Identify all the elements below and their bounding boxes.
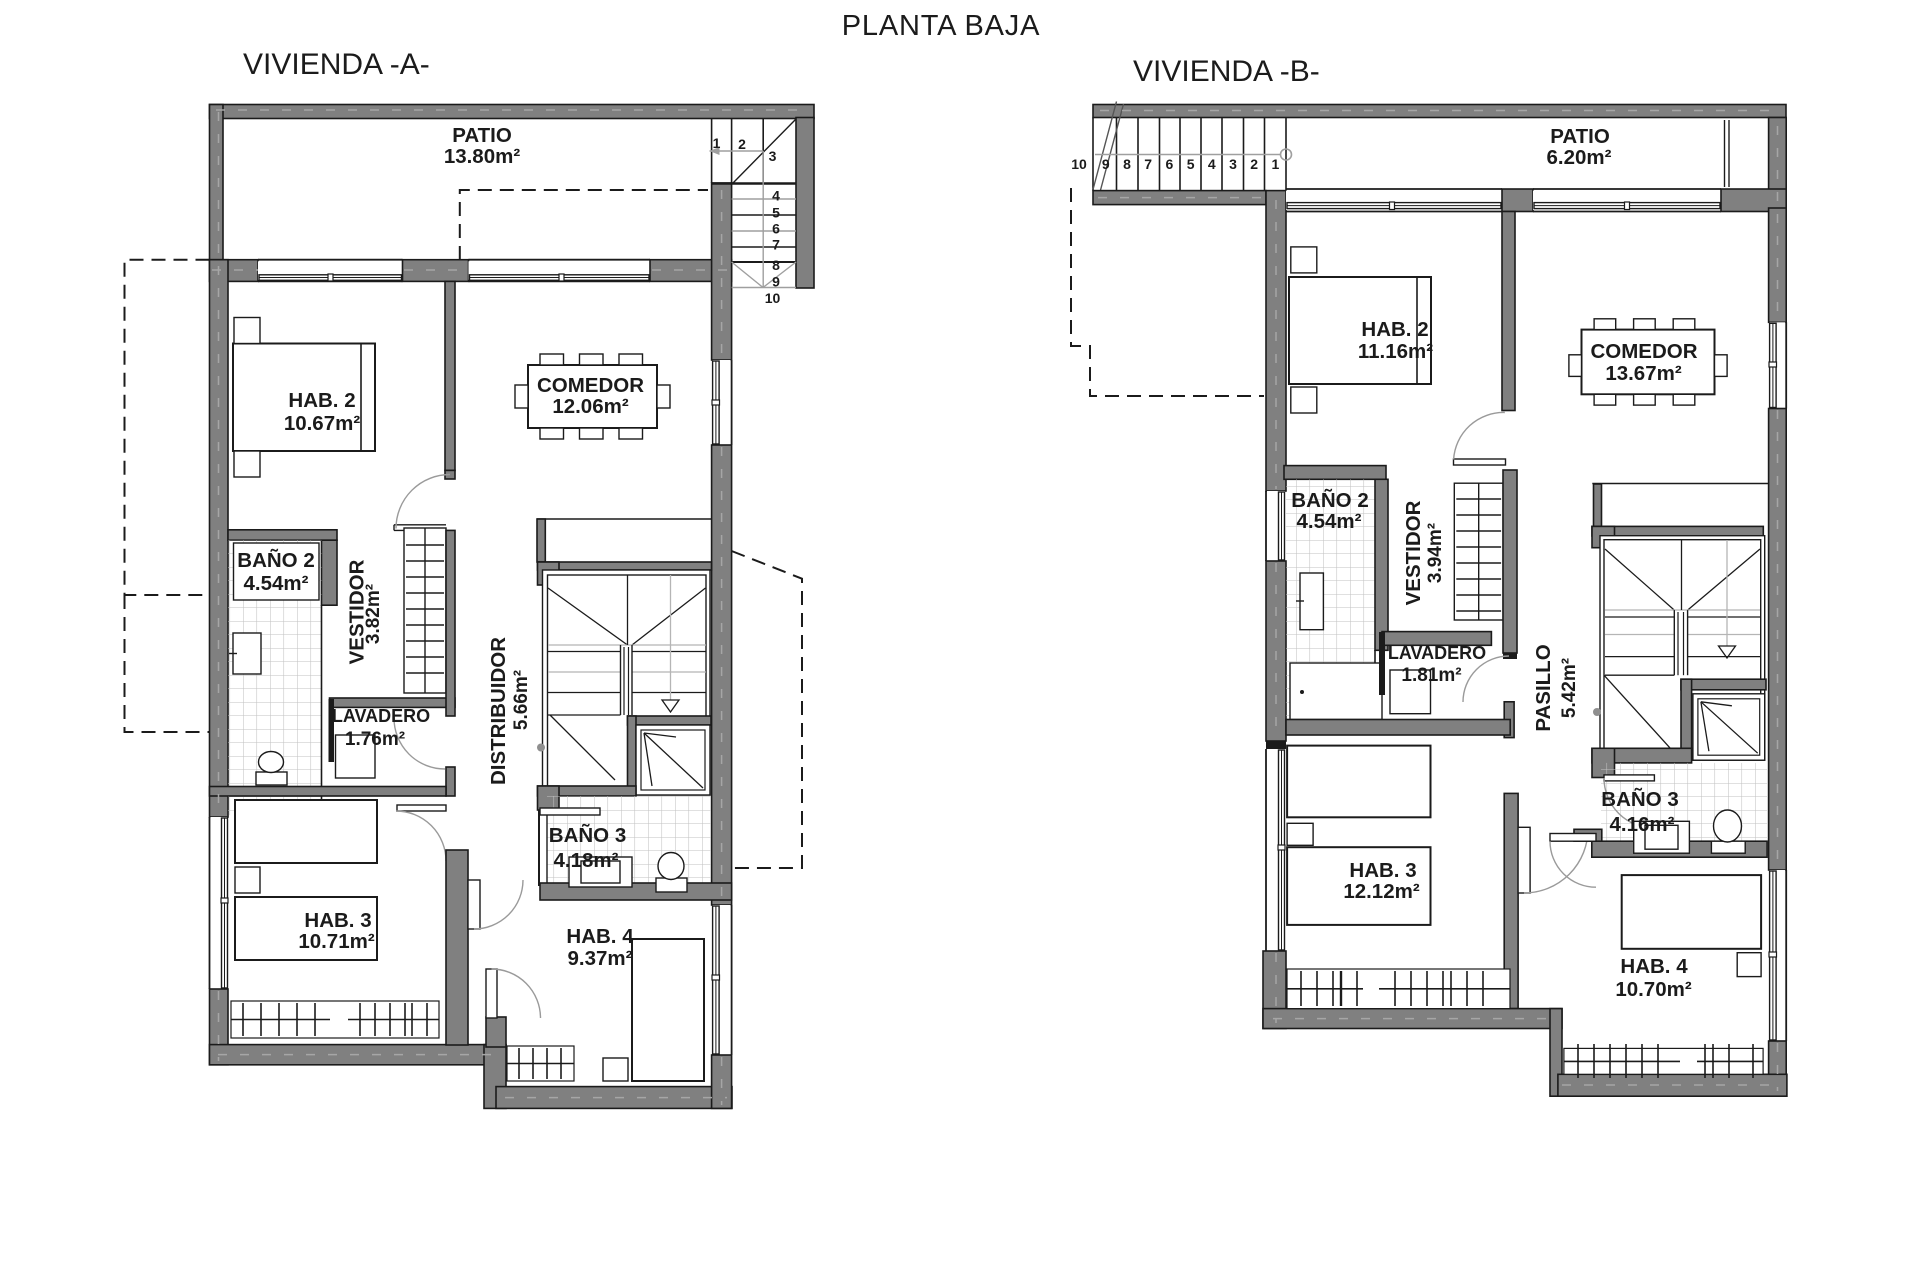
svg-text:VIVIENDA -A-: VIVIENDA -A- xyxy=(243,48,430,81)
svg-text:1.76m²: 1.76m² xyxy=(345,729,405,750)
svg-text:HAB. 3: HAB. 3 xyxy=(1349,859,1416,882)
svg-text:BAÑO 3: BAÑO 3 xyxy=(549,824,626,847)
svg-text:2: 2 xyxy=(1250,156,1258,172)
svg-text:PASILLO: PASILLO xyxy=(1532,644,1555,731)
svg-text:10: 10 xyxy=(765,290,781,306)
svg-text:4.16m²: 4.16m² xyxy=(1610,813,1675,836)
svg-text:8: 8 xyxy=(772,257,780,273)
svg-text:12.06m²: 12.06m² xyxy=(552,395,629,418)
svg-text:BAÑO 3: BAÑO 3 xyxy=(1601,788,1678,811)
svg-text:3.82m²: 3.82m² xyxy=(363,584,384,644)
svg-text:4.54m²: 4.54m² xyxy=(244,572,309,595)
svg-text:PATIO: PATIO xyxy=(1550,125,1610,148)
svg-text:6.20m²: 6.20m² xyxy=(1547,146,1612,169)
svg-text:3: 3 xyxy=(1229,156,1237,172)
svg-text:5.42m²: 5.42m² xyxy=(1559,658,1580,718)
svg-text:1.81m²: 1.81m² xyxy=(1401,665,1461,686)
svg-text:2: 2 xyxy=(738,136,746,152)
svg-text:4: 4 xyxy=(772,188,780,204)
svg-text:4.54m²: 4.54m² xyxy=(1297,510,1362,533)
svg-text:HAB. 2: HAB. 2 xyxy=(288,389,355,412)
svg-text:6: 6 xyxy=(772,221,780,237)
svg-text:13.67m²: 13.67m² xyxy=(1605,362,1682,385)
svg-text:VIVIENDA -B-: VIVIENDA -B- xyxy=(1133,55,1320,88)
svg-text:COMEDOR: COMEDOR xyxy=(1590,340,1697,363)
svg-text:HAB. 2: HAB. 2 xyxy=(1361,318,1428,341)
svg-text:COMEDOR: COMEDOR xyxy=(537,374,644,397)
svg-text:1: 1 xyxy=(713,135,721,151)
svg-text:HAB. 4: HAB. 4 xyxy=(566,925,634,948)
svg-text:PLANTA BAJA: PLANTA BAJA xyxy=(842,10,1040,42)
svg-text:7: 7 xyxy=(1144,156,1152,172)
svg-text:BAÑO 2: BAÑO 2 xyxy=(237,549,314,572)
svg-text:3.94m²: 3.94m² xyxy=(1425,523,1446,583)
svg-text:8: 8 xyxy=(1123,156,1131,172)
svg-text:3: 3 xyxy=(769,148,777,164)
svg-text:HAB. 3: HAB. 3 xyxy=(304,909,371,932)
svg-text:4.18m²: 4.18m² xyxy=(554,849,619,872)
svg-text:11.16m²: 11.16m² xyxy=(1358,340,1433,363)
svg-text:5.66m²: 5.66m² xyxy=(511,670,532,730)
svg-text:DISTRIBUIDOR: DISTRIBUIDOR xyxy=(487,637,510,785)
svg-text:10: 10 xyxy=(1071,156,1087,172)
svg-text:5: 5 xyxy=(1187,156,1195,172)
svg-text:HAB. 4: HAB. 4 xyxy=(1620,955,1688,978)
svg-text:9.37m²: 9.37m² xyxy=(568,947,633,970)
svg-text:4: 4 xyxy=(1208,156,1216,172)
svg-text:10.71m²: 10.71m² xyxy=(298,930,375,953)
svg-text:7: 7 xyxy=(772,237,780,253)
svg-text:12.12m²: 12.12m² xyxy=(1343,880,1420,903)
svg-text:LAVADERO: LAVADERO xyxy=(332,706,430,726)
svg-text:BAÑO 2: BAÑO 2 xyxy=(1291,489,1368,512)
svg-text:6: 6 xyxy=(1166,156,1174,172)
svg-text:PATIO: PATIO xyxy=(452,124,512,147)
svg-text:9: 9 xyxy=(1102,156,1110,172)
svg-text:5: 5 xyxy=(772,205,780,221)
svg-text:9: 9 xyxy=(772,274,780,290)
svg-text:VESTIDOR: VESTIDOR xyxy=(1402,500,1425,605)
svg-text:13.80m²: 13.80m² xyxy=(444,145,521,168)
svg-text:10.67m²: 10.67m² xyxy=(284,412,361,435)
svg-text:10.70m²: 10.70m² xyxy=(1615,978,1692,1001)
svg-text:1: 1 xyxy=(1272,156,1280,172)
svg-text:LAVADERO: LAVADERO xyxy=(1388,643,1486,663)
